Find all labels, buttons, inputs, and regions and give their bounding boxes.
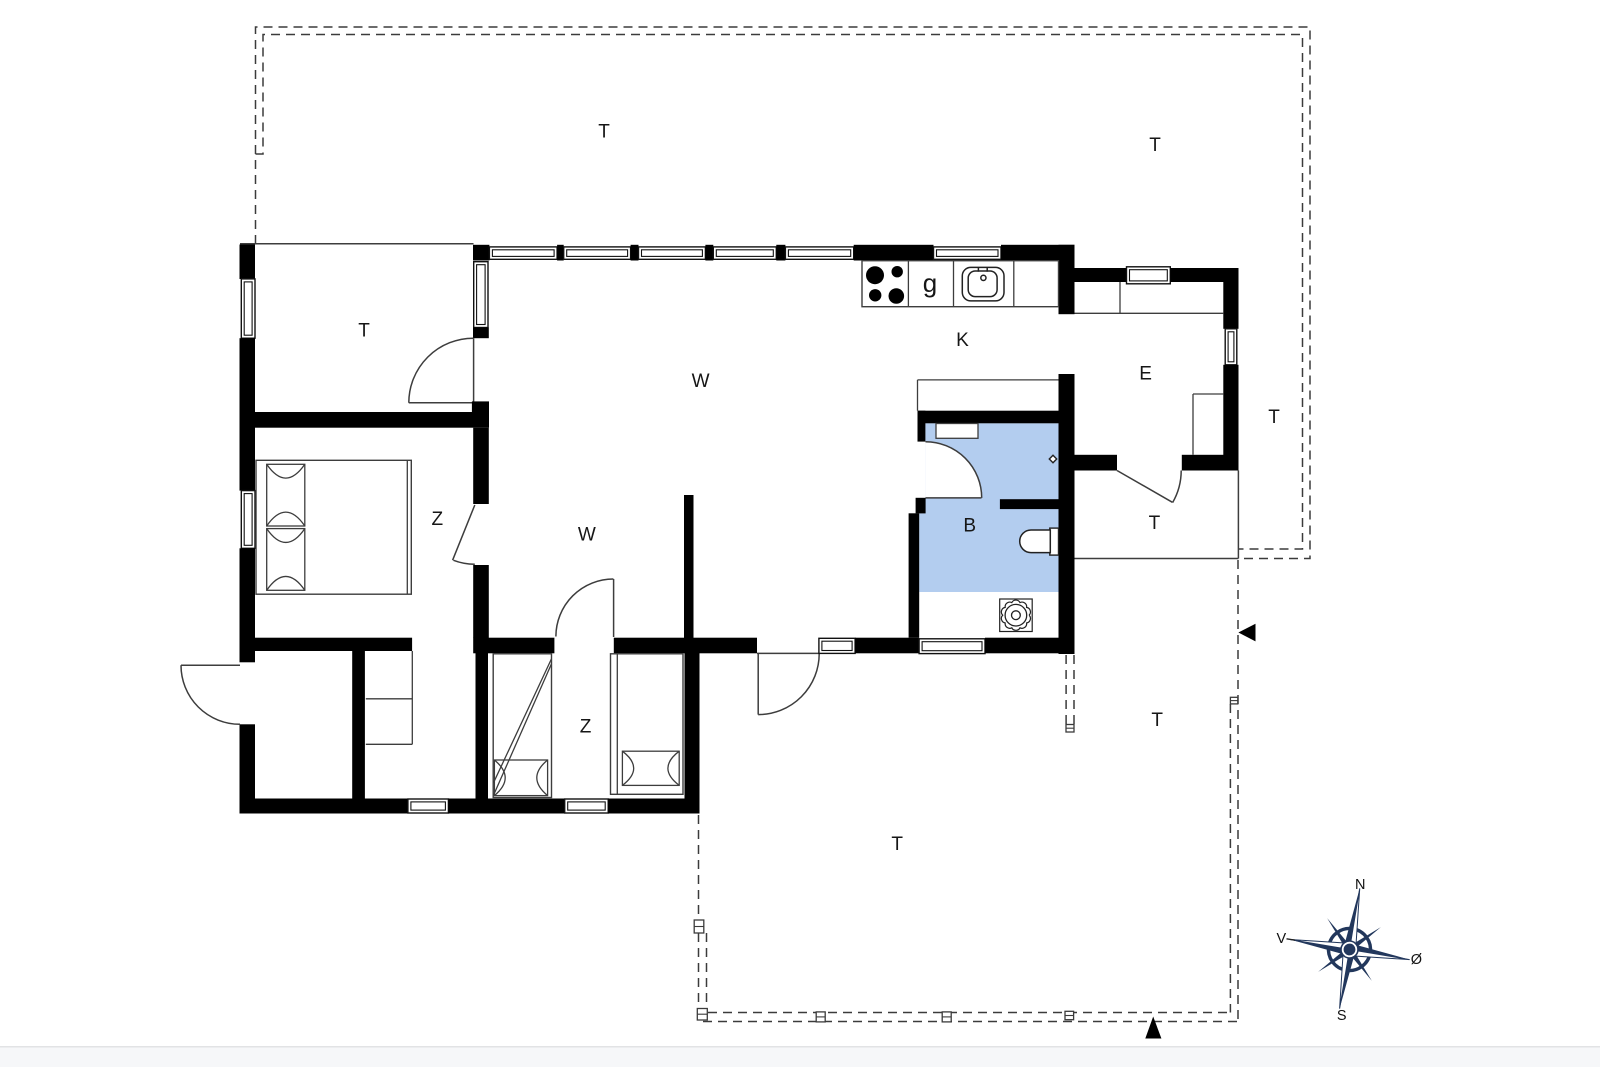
svg-text:T: T bbox=[598, 122, 610, 143]
svg-text:T: T bbox=[1151, 710, 1163, 731]
svg-text:E: E bbox=[1139, 363, 1152, 384]
svg-text:N: N bbox=[1355, 877, 1365, 893]
svg-text:Z: Z bbox=[580, 717, 592, 738]
svg-text:V: V bbox=[1276, 931, 1286, 947]
svg-text:B: B bbox=[963, 515, 976, 536]
svg-text:Z: Z bbox=[431, 509, 443, 530]
svg-text:Ø: Ø bbox=[1411, 952, 1422, 968]
svg-text:S: S bbox=[1337, 1008, 1347, 1024]
svg-text:T: T bbox=[1149, 513, 1161, 534]
svg-text:T: T bbox=[891, 834, 903, 855]
svg-text:g: g bbox=[923, 268, 937, 298]
svg-text:W: W bbox=[578, 524, 596, 545]
svg-text:K: K bbox=[956, 330, 969, 351]
svg-text:T: T bbox=[358, 320, 370, 341]
svg-text:W: W bbox=[692, 371, 710, 392]
svg-text:T: T bbox=[1268, 407, 1280, 428]
svg-text:T: T bbox=[1149, 135, 1161, 156]
